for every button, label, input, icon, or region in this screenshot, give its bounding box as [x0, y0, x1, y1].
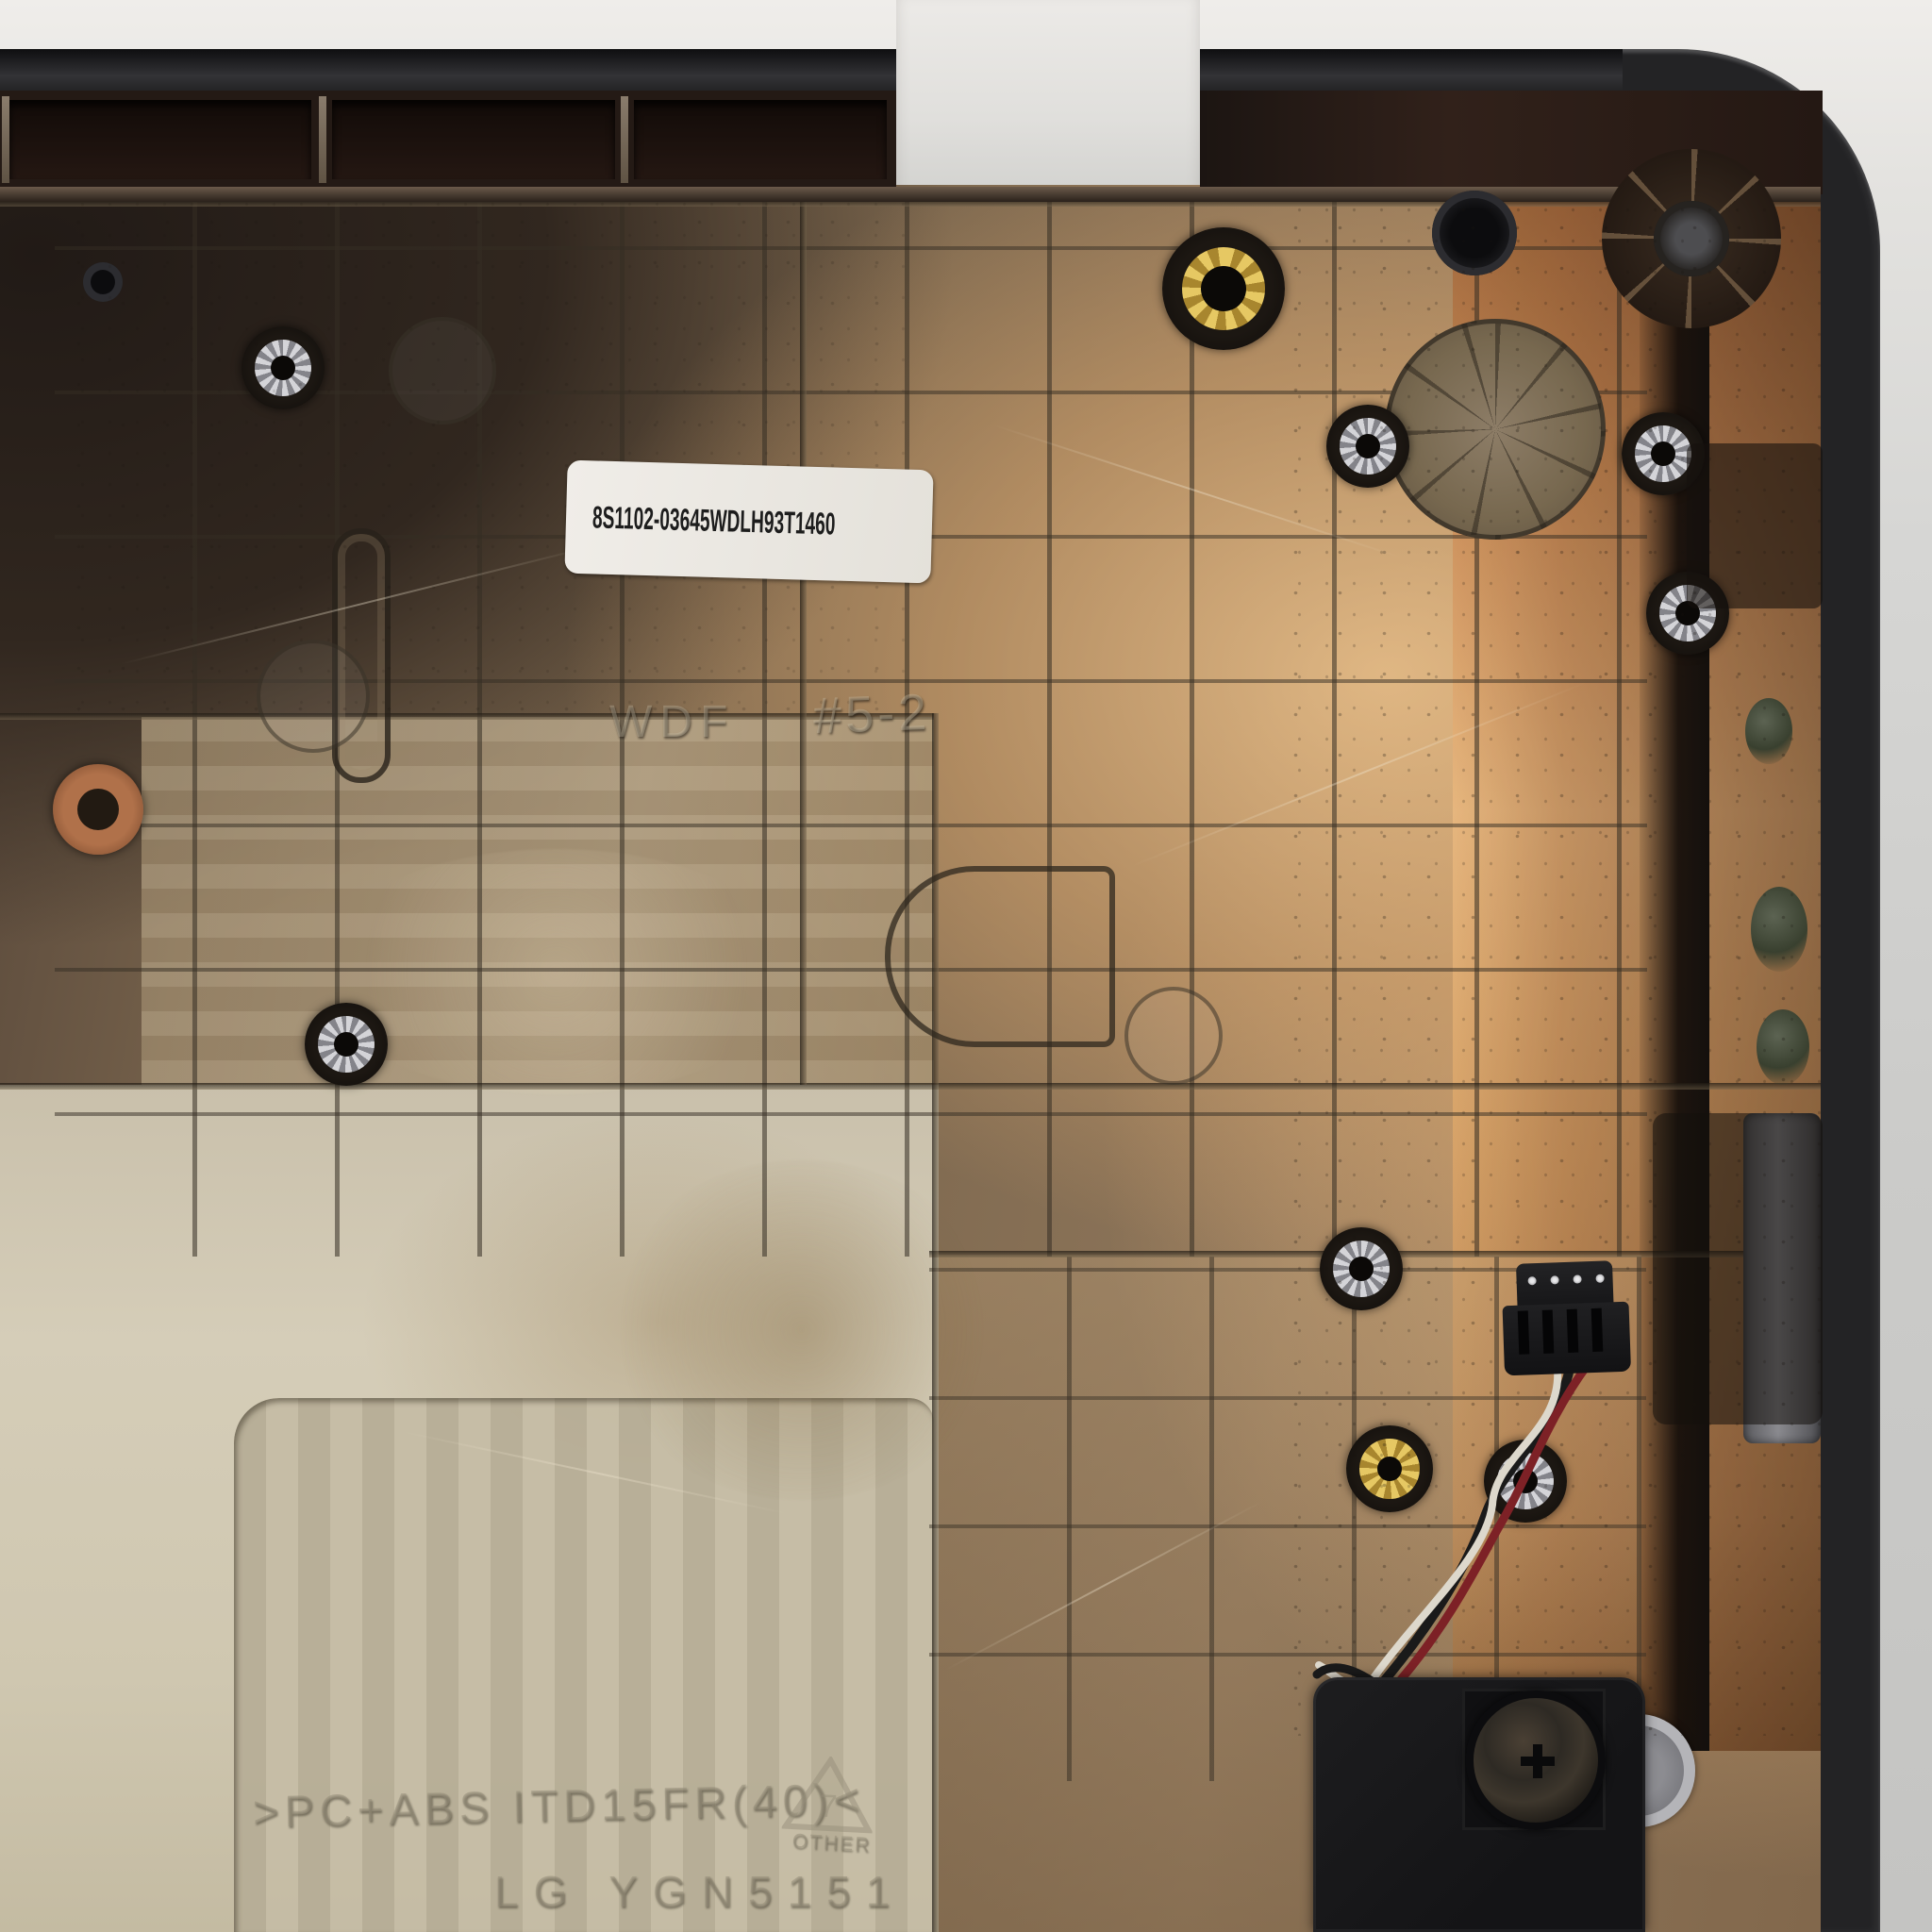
connector-slot — [1591, 1308, 1604, 1352]
copper-screw-hole — [53, 764, 143, 855]
major-rib-horizontal — [0, 713, 934, 720]
dirt-speckles — [57, 202, 906, 711]
recycle-label: OTHER — [791, 1830, 872, 1857]
wall-post — [319, 96, 326, 183]
connector-slot — [1542, 1309, 1555, 1353]
connector-pin — [1573, 1274, 1581, 1283]
qr-code — [575, 470, 577, 564]
wall-post — [621, 96, 628, 183]
connector-pin — [1550, 1275, 1558, 1284]
screw-boss-star-washer — [305, 1003, 388, 1086]
wall-recess — [9, 100, 311, 179]
mold-cavity-marking: #5-2 — [812, 683, 931, 745]
mold-tool-marking: WDF — [609, 696, 735, 748]
connector-slot — [1518, 1310, 1530, 1354]
connector-housing-body — [1503, 1302, 1632, 1376]
hinge-notch-cutout — [896, 0, 1200, 215]
wall-recess — [634, 100, 887, 179]
flat-circle-spot — [1124, 987, 1223, 1085]
connector-pin — [1527, 1276, 1536, 1285]
wall-post — [2, 96, 9, 183]
connector-slot — [1567, 1309, 1579, 1353]
label-part-number: 8S1102-03645WDLH93T1460 — [592, 499, 836, 541]
speaker-driver — [1466, 1690, 1606, 1830]
speaker-connector — [1501, 1260, 1631, 1376]
wall-recess — [332, 100, 615, 179]
speaker-cable — [1292, 1340, 1632, 1717]
top-wall — [0, 91, 896, 189]
maker-marking: LG YGN5151 — [494, 1866, 905, 1917]
wall-sill — [0, 187, 1821, 202]
barcode-label: 8S1102-03645WDLH93T1460 — [564, 460, 933, 584]
screw-cross-slot — [1533, 1744, 1542, 1778]
resin-code: 7 — [819, 1789, 839, 1825]
speaker-module — [1313, 1677, 1645, 1932]
recycling-symbol: 7 OTHER — [780, 1755, 875, 1857]
stadium-rib — [885, 866, 1115, 1047]
photo-laptop-bottom-case: 8S1102-03645WDLH93T1460 WDF #5-2 >PC+ABS… — [0, 0, 1932, 1932]
brass-threaded-insert — [1162, 227, 1285, 350]
connector-pin — [1595, 1274, 1604, 1283]
